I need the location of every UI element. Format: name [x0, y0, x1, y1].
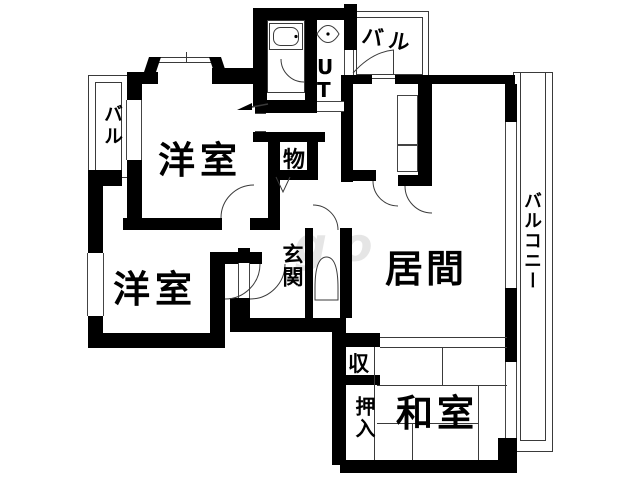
wall: [395, 75, 515, 84]
label-storage-shu: 収: [348, 348, 369, 378]
wall: [230, 318, 345, 332]
wall: [88, 333, 225, 348]
watermark-text: go: [294, 218, 387, 272]
north-arrow-icon: [237, 103, 252, 110]
room1-door-arc: [221, 185, 254, 218]
sink-drain-dot: [326, 32, 329, 35]
room-label-tatami: 和室: [396, 383, 478, 437]
living-door-arc: [405, 186, 432, 213]
bathtub-drain-dot: [294, 35, 297, 38]
wall: [255, 100, 317, 113]
bathtub-inner-icon: [274, 28, 299, 46]
kitchen-sink: [397, 145, 418, 172]
wall: [505, 288, 517, 362]
window: [344, 50, 354, 75]
wall: [305, 8, 317, 105]
wall: [307, 132, 318, 180]
label-utility: UT: [317, 56, 335, 102]
wall: [127, 159, 142, 219]
window: [505, 362, 517, 438]
wall: [212, 68, 268, 84]
wall: [253, 8, 267, 106]
window: [87, 253, 104, 316]
wall: [498, 438, 517, 466]
room-label-western2: 洋室: [113, 259, 197, 313]
floor-plan: go 洋室 洋室 居間 和室 玄関 UT 物 収 押入 バル バル バルコニー: [0, 0, 640, 480]
sink-basin-icon: [317, 26, 339, 43]
wall: [127, 72, 142, 101]
bathtub-icon: [270, 24, 303, 50]
label-balcony-right: バルコニー: [518, 191, 544, 291]
threshold-line: [380, 337, 507, 348]
tatami-line: [442, 348, 443, 385]
label-storage: 物: [283, 142, 305, 174]
wall: [88, 170, 122, 186]
bathroom-outline: [268, 21, 305, 93]
wall: [210, 252, 225, 348]
wall: [238, 248, 250, 264]
wall: [342, 333, 380, 347]
label-balcony-left: バル: [99, 104, 126, 148]
wall: [341, 84, 353, 182]
kitchen-counter: [397, 95, 418, 145]
wall: [505, 84, 517, 122]
bath-door-arc: [281, 59, 304, 82]
wall: [418, 84, 432, 186]
wall: [123, 218, 222, 230]
label-closet: 押入: [350, 396, 379, 440]
door-opening: [317, 101, 344, 112]
door-opening: [255, 113, 266, 132]
wall: [340, 460, 517, 473]
entrance-opening: [238, 263, 250, 298]
wall: [353, 170, 376, 181]
room-label-western1: 洋室: [158, 130, 242, 184]
wall: [88, 186, 103, 254]
window: [126, 100, 142, 160]
label-entrance: 玄関: [277, 243, 307, 289]
tatami-line: [478, 386, 479, 460]
room-label-living: 居間: [385, 238, 467, 293]
kitchen-door-arc: [373, 181, 398, 206]
wall: [341, 75, 372, 84]
wall: [210, 252, 262, 264]
window: [505, 122, 517, 288]
wall: [344, 4, 357, 50]
wall: [268, 141, 280, 230]
